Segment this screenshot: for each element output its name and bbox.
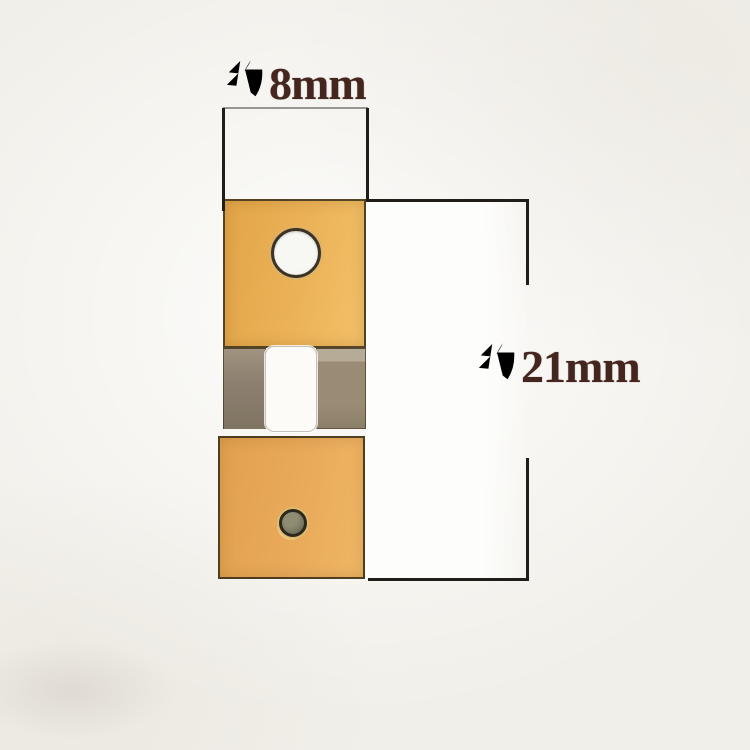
height-value-text: 21mm: [521, 344, 640, 390]
width-tick-left: [222, 108, 225, 211]
product-dimension-photo: 8mm 21mm: [0, 0, 750, 750]
yue-character-icon: [224, 58, 266, 104]
height-tick-lower: [526, 458, 529, 581]
dimension-annotations: 8mm 21mm: [0, 0, 750, 750]
yue-character-icon: [476, 341, 518, 387]
width-tick-right: [366, 108, 369, 200]
height-tick-upper: [526, 199, 529, 285]
height-dimension-bottom-line: [368, 578, 529, 581]
height-dimension-top-line: [366, 199, 529, 202]
width-dimension-label: 8mm: [224, 58, 366, 107]
width-value-text: 8mm: [269, 61, 366, 107]
height-dimension-label: 21mm: [476, 341, 640, 390]
